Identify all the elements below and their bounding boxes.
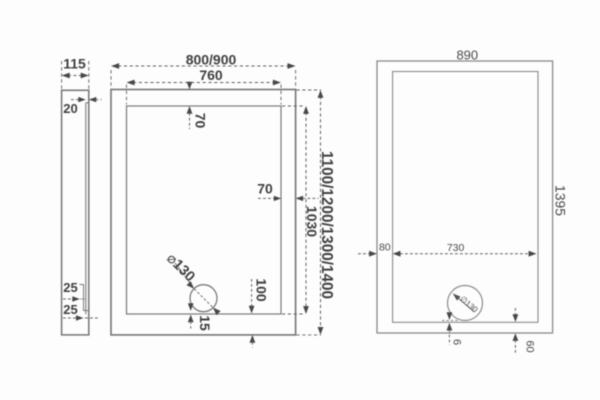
svg-text:1395: 1395 xyxy=(552,185,568,216)
svg-text:115: 115 xyxy=(63,56,86,72)
svg-text:70: 70 xyxy=(257,181,273,197)
svg-text:20: 20 xyxy=(63,101,77,116)
svg-text:60: 60 xyxy=(524,340,536,352)
svg-text:25: 25 xyxy=(63,280,77,295)
svg-text:800/900: 800/900 xyxy=(186,52,237,68)
svg-text:100: 100 xyxy=(254,278,270,302)
svg-text:1030: 1030 xyxy=(304,206,320,237)
svg-text:760: 760 xyxy=(199,67,223,83)
svg-text:∅130: ∅130 xyxy=(163,251,198,286)
svg-text:80: 80 xyxy=(379,242,391,254)
svg-text:6: 6 xyxy=(451,339,463,345)
svg-text:70: 70 xyxy=(192,113,208,129)
svg-text:∅130: ∅130 xyxy=(458,294,480,314)
svg-text:1100/1200/1300/1400: 1100/1200/1300/1400 xyxy=(318,151,335,299)
svg-text:25: 25 xyxy=(63,302,77,317)
svg-text:15: 15 xyxy=(197,315,213,331)
svg-text:730: 730 xyxy=(447,242,465,254)
svg-text:890: 890 xyxy=(456,48,478,63)
